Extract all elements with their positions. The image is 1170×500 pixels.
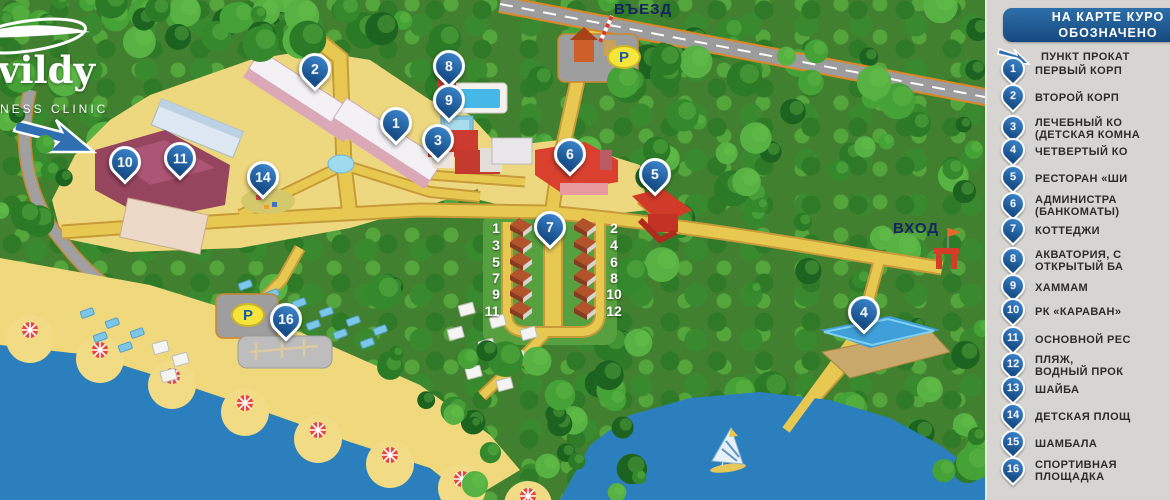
cottage-number: 10 <box>604 286 624 302</box>
legend-row-5: 5РЕСТОРАН «ШИ <box>997 164 1128 194</box>
legend-row-8: 8АКВАТОРИЯ, С ОТКРЫТЫЙ БА <box>997 246 1123 276</box>
logo-name: vildy <box>0 52 95 89</box>
legend-row-16: 16СПОРТИВНАЯ ПЛОЩАДКА <box>997 456 1117 486</box>
legend-row-4: 4ЧЕТВЕРТЫЙ КО <box>997 137 1128 167</box>
legend-row-10: 10РК «КАРАВАН» <box>997 297 1121 327</box>
cottage-number: 2 <box>604 220 624 236</box>
resort-map-screenshot: vildy NESS CLINIC ВЪЕЗД ВХОД Р Р 1 3 5 7… <box>0 0 1170 500</box>
legend-row-13: 13ШАЙБА <box>997 375 1079 405</box>
legend-title: НА КАРТЕ КУРО ОБОЗНАЧЕНО <box>1003 8 1170 42</box>
cottage-number: 7 <box>486 270 506 286</box>
legend-panel: НА КАРТЕ КУРО ОБОЗНАЧЕНО ПУНКТ ПРОКАТ 1П… <box>985 0 1170 500</box>
logo-subtitle: NESS CLINIC <box>0 102 108 116</box>
cottage-number: 5 <box>486 254 506 270</box>
cottage-number: 3 <box>486 237 506 253</box>
legend-row-15: 15ШАМБАЛА <box>997 429 1097 459</box>
fountain-pond <box>328 155 354 173</box>
cottage-number: 1 <box>486 220 506 236</box>
legend-row-1: 1ПЕРВЫЙ КОРП <box>997 56 1122 86</box>
entrance-top-label: ВЪЕЗД <box>614 1 672 18</box>
cottage-number: 6 <box>604 254 624 270</box>
cottage-number: 12 <box>604 303 624 319</box>
parking-sign-top: Р <box>607 45 641 69</box>
parking-sign-beach: Р <box>231 303 265 327</box>
legend-row-7: 7КОТТЕДЖИ <box>997 216 1100 246</box>
fourth-corpus-building <box>820 316 950 378</box>
lake <box>560 392 985 500</box>
cottage-number: 11 <box>482 303 502 319</box>
legend-row-14: 14ДЕТСКАЯ ПЛОЩ <box>997 402 1131 432</box>
cottage-number: 9 <box>486 286 506 302</box>
entrance-right-label: ВХОД <box>893 220 939 237</box>
cottage-number: 4 <box>604 237 624 253</box>
cottage-number: 8 <box>604 270 624 286</box>
legend-row-2: 2ВТОРОЙ КОРП <box>997 83 1119 113</box>
